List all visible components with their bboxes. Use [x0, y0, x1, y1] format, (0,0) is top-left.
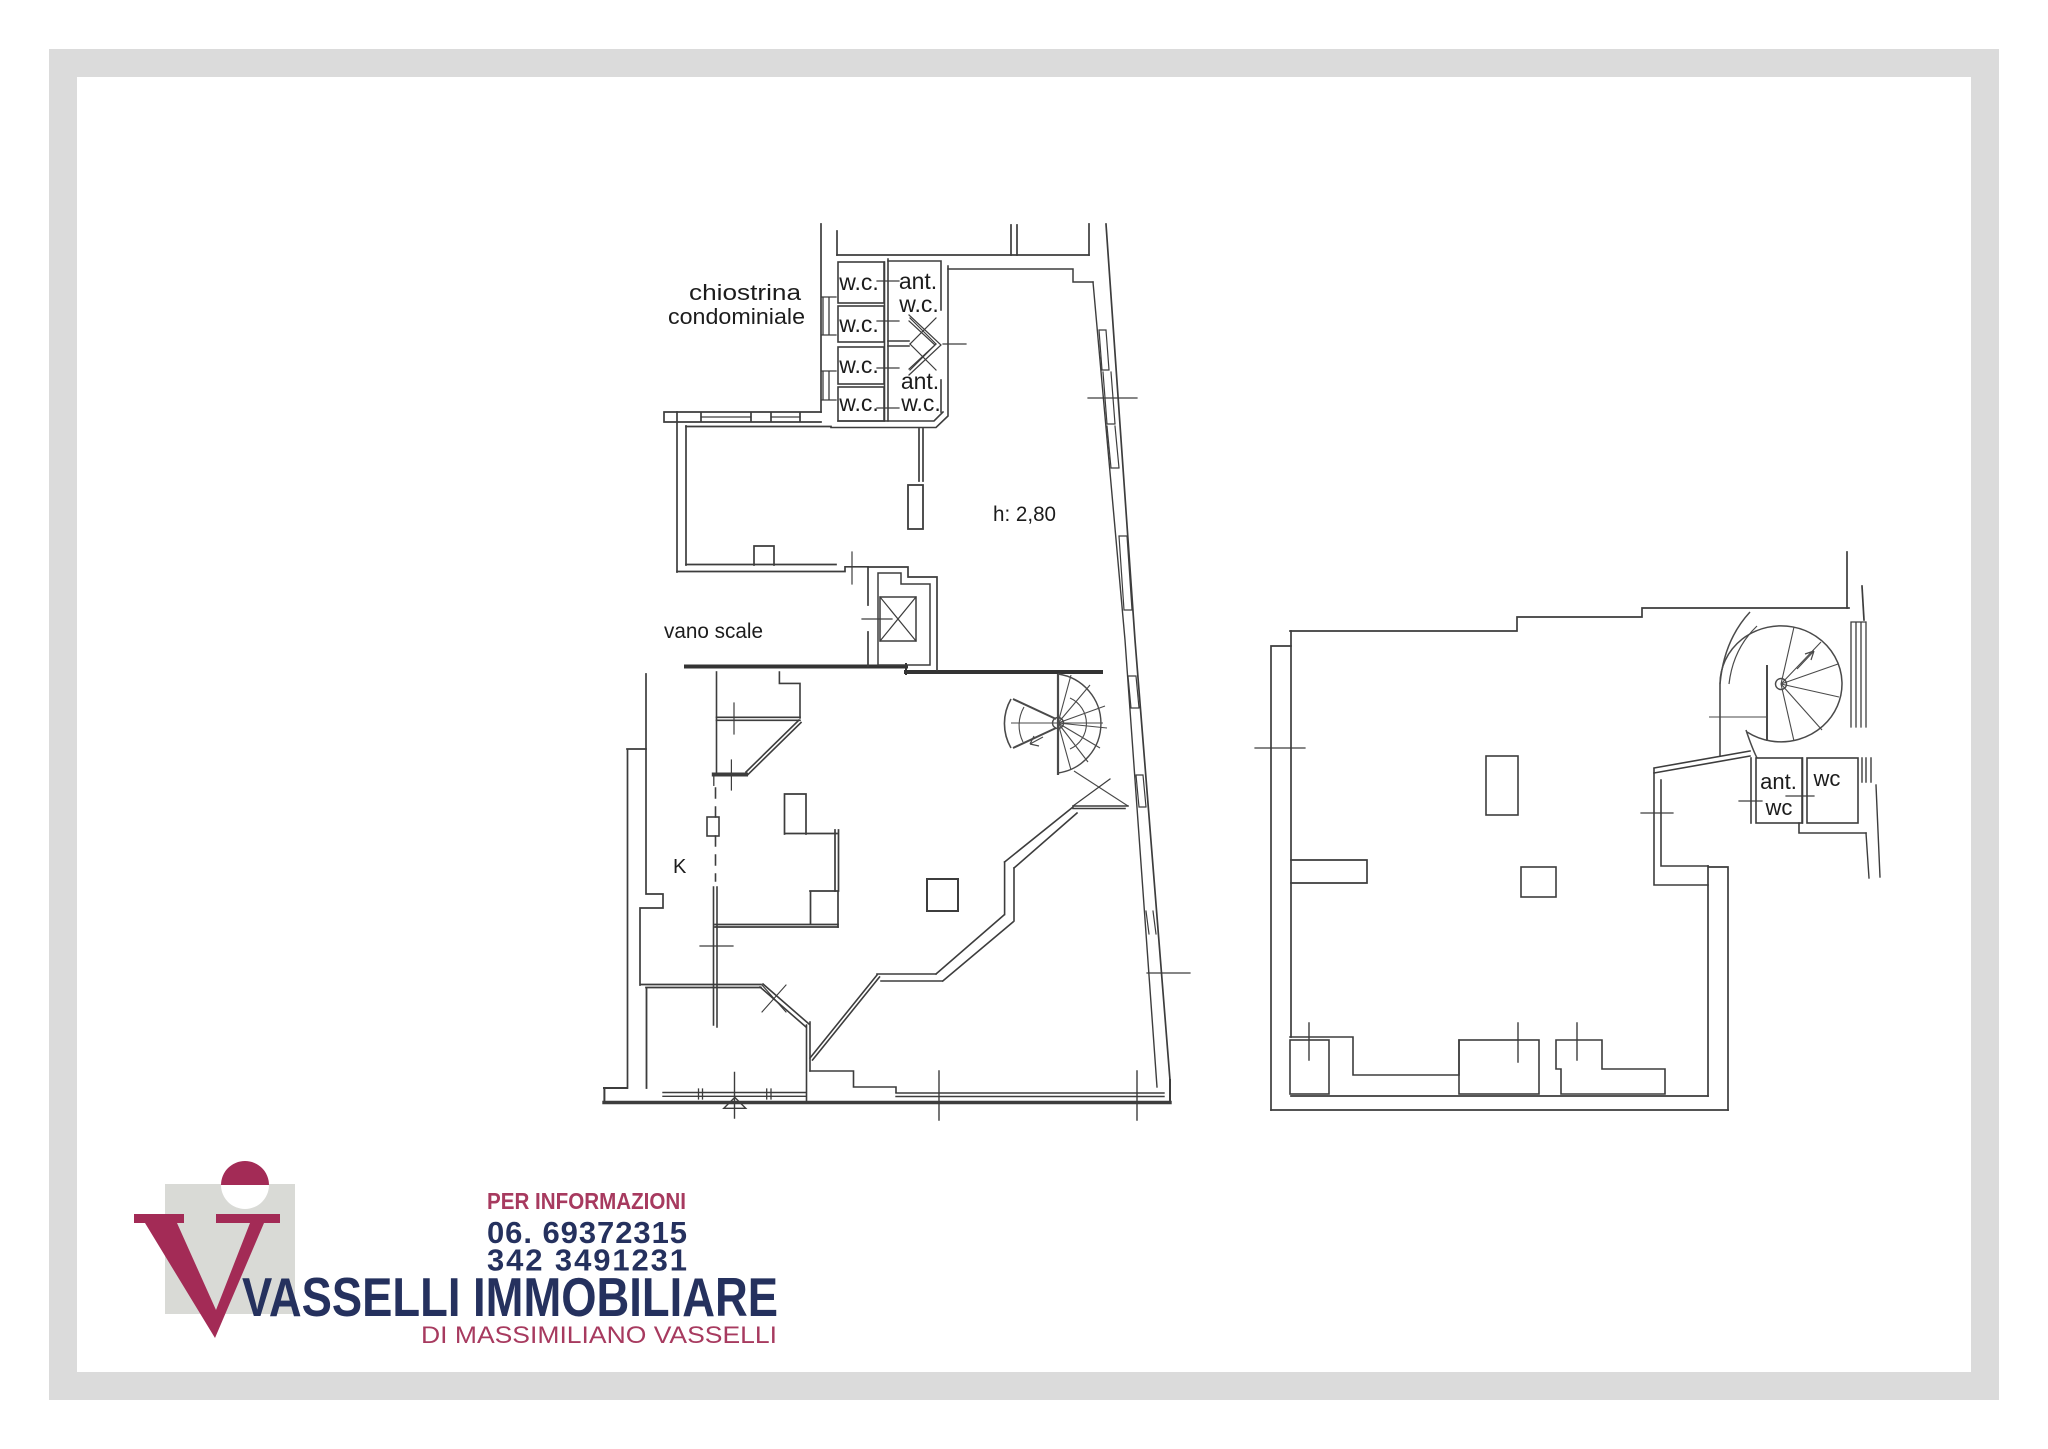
svg-text:w.c.: w.c.: [838, 390, 879, 416]
svg-text:PER INFORMAZIONI: PER INFORMAZIONI: [487, 1188, 686, 1214]
svg-text:wc: wc: [1813, 766, 1841, 791]
svg-text:w.c.: w.c.: [898, 291, 939, 317]
svg-text:chiostrina: chiostrina: [689, 280, 802, 305]
svg-text:wc: wc: [1765, 795, 1793, 820]
svg-text:h: 2,80: h: 2,80: [993, 503, 1056, 526]
svg-text:w.c.: w.c.: [838, 269, 879, 295]
svg-text:vano scale: vano scale: [664, 620, 763, 643]
svg-text:DI MASSIMILIANO VASSELLI: DI MASSIMILIANO VASSELLI: [421, 1322, 777, 1349]
svg-text:condominiale: condominiale: [668, 304, 805, 329]
svg-text:VASSELLI IMMOBILIARE: VASSELLI IMMOBILIARE: [242, 1266, 778, 1328]
svg-text:ant.: ant.: [1760, 769, 1797, 794]
svg-text:w.c.: w.c.: [838, 311, 879, 337]
svg-text:w.c.: w.c.: [838, 352, 879, 378]
svg-text:w.c.: w.c.: [900, 390, 941, 416]
svg-text:K: K: [673, 856, 687, 878]
